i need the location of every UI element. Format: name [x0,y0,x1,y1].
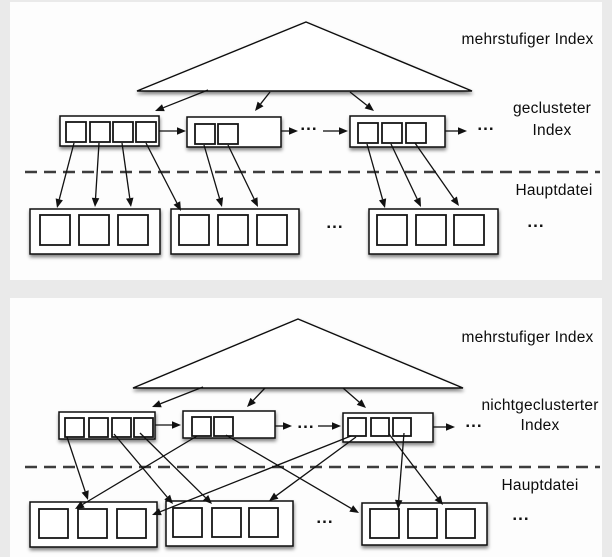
ellipsis-index-mid-bottom: ... [293,415,319,431]
mainfile-block-cell [218,215,248,245]
ellipsis-main-right-top: ... [523,214,549,230]
pyramid-arrow [253,388,265,400]
record-pointer-arrow-head [126,198,133,207]
pyramid-arrow [261,92,270,104]
index-block-cell [214,417,233,436]
mainfile-block-cell [446,509,475,538]
mainfile-block-cell [117,509,146,538]
record-pointer-arrow [67,437,85,491]
block-chain-arrow-head [332,422,341,430]
record-pointer-arrow-head [379,198,386,208]
mainfile-block-cell [249,508,278,537]
diagram-canvas [0,0,612,557]
mainfile-block-cell [212,508,241,537]
mainfile-block-cell [79,215,109,245]
ellipsis-index-right-top: ... [473,117,499,133]
label-clustered-index-line1: geclusteter [502,101,602,117]
index-block-cell [382,123,402,143]
pyramid-arrow [343,388,359,402]
mainfile-block-cell [377,215,407,245]
mainfile-block-cell [257,215,287,245]
mainfile-block-cell [408,509,437,538]
record-pointer-arrow-head [92,198,99,207]
index-block-cell [192,417,211,436]
index-block-cell [195,124,215,144]
record-pointer-arrow-head [56,198,63,208]
block-chain-arrow-head [458,127,467,135]
index-block-cell [90,122,110,142]
mainfile-block-cell [454,215,484,245]
pyramid-arrow [350,92,367,105]
mainfile-block-cell [118,215,148,245]
multilevel-index-pyramid [133,319,463,388]
mainfile-block-cell [370,509,399,538]
index-block-cell [348,418,366,436]
index-block-cell [136,122,156,142]
index-block-cell [113,122,133,142]
record-pointer-arrow [83,436,197,504]
pyramid-arrow-head [255,102,264,111]
record-pointer-arrow-head [349,505,359,513]
index-block-cell [358,123,378,143]
mainfile-block-cell [173,508,202,537]
label-nonclustered-index-line2: Index [490,418,590,434]
record-pointer-arrow-head [82,490,89,500]
pyramid-arrow-head [155,104,165,111]
mainfile-block-cell [39,509,68,538]
record-pointer-arrow-head [216,197,223,207]
block-chain-arrow-head [339,127,348,135]
record-pointer-arrow [226,435,351,508]
pyramid-arrow-head [365,102,374,111]
pyramid-arrow-head [152,400,162,407]
record-pointer-arrow-head [269,493,278,501]
pyramid-arrow [160,387,203,404]
record-pointer-arrow [114,434,167,497]
label-clustered-index-line2: Index [502,123,602,139]
index-block-cell [89,418,108,437]
ellipsis-main-mid-top: ... [322,215,348,231]
label-multilevel-index-top: mehrstufiger Index [455,32,600,48]
ellipsis-index-right-bottom: ... [461,414,487,430]
index-block-cell [371,418,389,436]
index-block-cell [406,123,426,143]
record-pointer-arrow [276,437,356,496]
label-multilevel-index-bottom: mehrstufiger Index [455,330,600,346]
index-block-cell [66,122,86,142]
mainfile-block-cell [416,215,446,245]
ellipsis-main-mid-bottom: ... [312,510,338,526]
record-pointer-arrow [399,433,404,500]
ellipsis-index-mid-top: ... [296,117,322,133]
index-block-cell [65,418,84,437]
pyramid-arrow [163,90,208,108]
index-block-cell [134,418,153,437]
record-pointer-arrow-head [451,196,459,206]
ellipsis-main-right-bottom: ... [508,507,534,523]
block-chain-arrow-head [446,423,455,431]
block-chain-arrow-head [177,127,186,135]
mainfile-block-cell [40,215,70,245]
record-pointer-arrow [140,433,206,498]
multilevel-index-pyramid [137,22,472,91]
mainfile-block-cell [179,215,209,245]
label-mainfile-top: Hauptdatei [504,183,604,199]
slide-page: mehrstufiger Index geclusteter Index Hau… [0,0,612,557]
record-pointer-arrow [228,145,254,199]
record-pointer-arrow [96,143,99,198]
label-mainfile-bottom: Hauptdatei [490,478,590,494]
block-chain-arrow-head [172,421,181,429]
block-chain-arrow-head [283,422,292,430]
record-pointer-arrow [122,143,130,198]
label-nonclustered-index-line1: nichtgeclusterter [465,398,612,414]
index-block-cell [218,124,238,144]
index-block-cell [393,418,411,436]
mainfile-block-cell [78,509,107,538]
